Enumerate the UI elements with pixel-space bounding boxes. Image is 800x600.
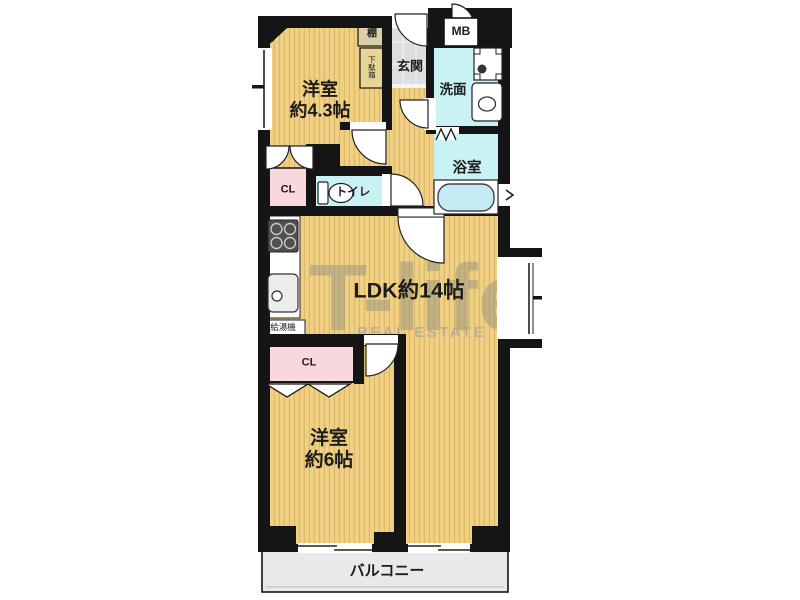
washroom-label: 洗面: [440, 82, 467, 98]
bedroom-small-label-line2: 約4.3帖: [289, 100, 350, 121]
bedroom-small-label: 洋室 約4.3帖: [289, 79, 350, 120]
bedroom-small-label-line1: 洋室: [289, 79, 350, 100]
entrance-label: 玄関: [397, 60, 423, 75]
left-window-tick: [252, 85, 264, 89]
wall-pillar-bottom-right: [472, 526, 510, 552]
closet-upper-label: CL: [281, 184, 296, 197]
wall-left-upper: [258, 16, 270, 50]
meter-box-label: MB: [452, 25, 471, 39]
bathroom-label: 浴室: [453, 161, 482, 178]
bedroom-large-label-line2: 約6帖: [305, 450, 354, 472]
water-heater-label: 給湯機: [270, 323, 296, 333]
balcony-window-left: [298, 543, 372, 553]
wall-right-lower: [498, 342, 510, 552]
bay-window-bar-top: [498, 248, 542, 257]
floor-plan-image: T-life REAL ESTATE: [0, 0, 800, 600]
wall-toilet-top: [306, 166, 392, 176]
balcony-window-right: [408, 543, 470, 553]
bedroom-small-door-gap: [350, 122, 386, 130]
bathtub-icon: [434, 180, 498, 214]
vanity-basin-icon: [472, 83, 502, 121]
closet-lower-label: CL: [302, 357, 317, 370]
bay-window-tick: [533, 296, 542, 300]
ldk-label: LDK約14帖: [353, 279, 464, 304]
balcony-label: バルコニー: [350, 562, 425, 579]
wall-pillar-bottom-left: [258, 526, 296, 552]
wall-entrance-left: [382, 22, 392, 130]
wall-ldk-bedroom-divider: [394, 338, 406, 546]
bath-vent-gap: [497, 184, 514, 206]
bedroom-large-label: 洋室 約6帖: [305, 428, 354, 472]
washer-pan-icon: [474, 48, 502, 80]
shoe-cabinet-label: 下駄箱: [367, 56, 376, 79]
bedroom-large-label-line1: 洋室: [305, 428, 354, 450]
wall-closet-lower-right: [354, 336, 364, 384]
toilet-label: トイレ: [336, 186, 371, 199]
bay-window-gap: [497, 257, 538, 339]
bay-window-bar-bottom: [498, 339, 542, 348]
entrance-step: [390, 84, 430, 88]
stove-icon: [268, 220, 298, 252]
shelf-label: 棚: [367, 28, 377, 40]
sink-icon: [268, 274, 298, 312]
